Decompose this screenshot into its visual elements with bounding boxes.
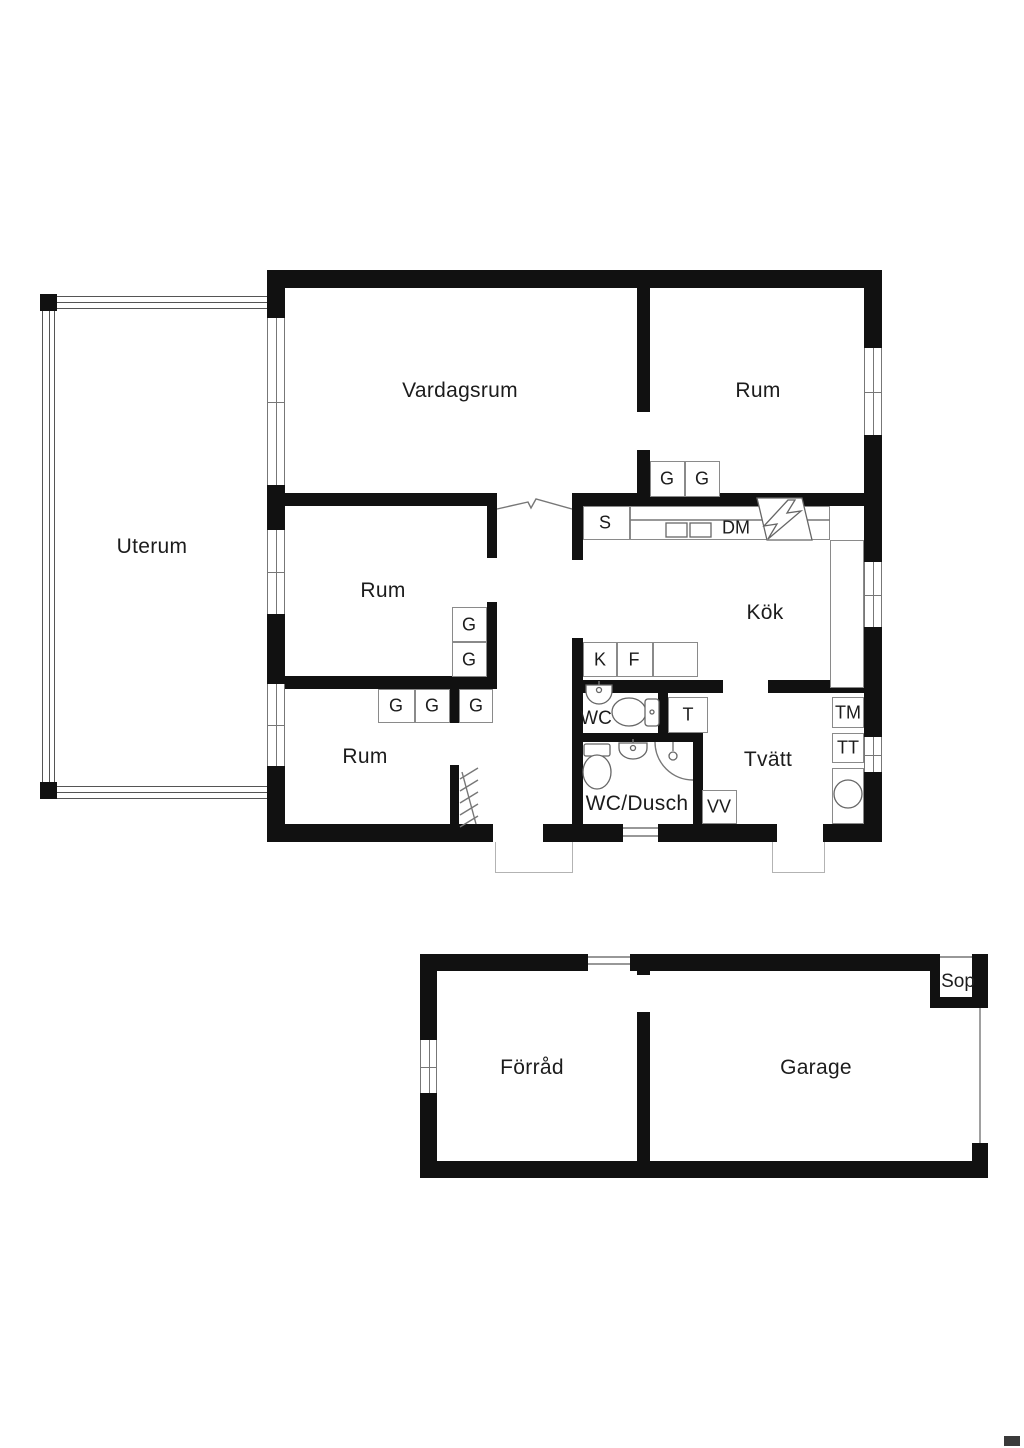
room-label-garage: Garage bbox=[780, 1056, 852, 1080]
room-label-uterum: Uterum bbox=[117, 535, 188, 559]
house-wall-right bbox=[864, 270, 882, 348]
wardrobe-label: G bbox=[660, 469, 674, 490]
wardrobe-label: G bbox=[425, 696, 439, 717]
wall-hall-right-upper bbox=[572, 506, 583, 560]
house-wall-bottom bbox=[267, 824, 493, 842]
room-label-rum-bottom: Rum bbox=[342, 745, 387, 769]
wardrobe-label: G bbox=[389, 696, 403, 717]
floor-plan: Uterum Vardagsrum Rum Rum Rum Kök Tvätt … bbox=[0, 0, 1024, 1448]
toilet bbox=[583, 744, 611, 789]
drying-cabinet-label: T bbox=[683, 705, 694, 726]
room-label-forrad: Förråd bbox=[500, 1056, 564, 1080]
wall-rum-middle-bottom bbox=[285, 676, 497, 689]
uterum-corner-post-top bbox=[40, 294, 57, 311]
window bbox=[864, 737, 882, 772]
wall-vardagsrum-bottom bbox=[285, 493, 497, 506]
double-door-symbol bbox=[497, 499, 572, 509]
house-wall-bottom bbox=[543, 824, 623, 842]
washing-machine-label: TM bbox=[835, 703, 861, 724]
wall-rum-bottom-door-stub bbox=[450, 765, 459, 824]
uterum-glass-wall-bottom bbox=[42, 786, 268, 799]
window bbox=[267, 530, 285, 614]
wardrobe-label: G bbox=[695, 469, 709, 490]
garage-wall-left bbox=[420, 954, 437, 1040]
forrad-door bbox=[588, 957, 630, 964]
water-heater-label: VV bbox=[707, 797, 731, 818]
house-wall-left bbox=[267, 485, 285, 530]
wall-forrad-garage bbox=[637, 954, 650, 975]
house-wall-left bbox=[267, 270, 285, 318]
dishwasher-label: DM bbox=[722, 518, 750, 539]
garage-wall-top bbox=[630, 954, 940, 971]
freezer-label: F bbox=[629, 650, 640, 671]
wardrobe-label: G bbox=[462, 615, 476, 636]
garage-wall-right bbox=[972, 1143, 988, 1178]
tumble-dryer-label: TT bbox=[837, 738, 859, 759]
wall-wc-top bbox=[575, 680, 723, 693]
house-wall-top bbox=[267, 270, 882, 288]
cabinet bbox=[653, 642, 698, 677]
room-label-rum-top: Rum bbox=[735, 379, 780, 403]
wall-wc-dusch-top bbox=[575, 733, 703, 742]
entrance-porch bbox=[495, 842, 573, 873]
room-label-rum-middle: Rum bbox=[360, 579, 405, 603]
fridge-label: K bbox=[594, 650, 606, 671]
window bbox=[420, 1040, 437, 1093]
wall-closet-divider bbox=[450, 689, 459, 723]
hatched-door-symbol bbox=[460, 768, 478, 827]
house-wall-bottom bbox=[823, 824, 882, 842]
room-label-sop: Sop bbox=[941, 971, 975, 993]
window bbox=[864, 562, 882, 627]
window bbox=[267, 684, 285, 766]
shower bbox=[655, 742, 693, 780]
garage-wall-top bbox=[420, 954, 588, 971]
logo-mark bbox=[1004, 1436, 1020, 1446]
entrance-porch bbox=[772, 842, 825, 873]
house-wall-right bbox=[864, 627, 882, 737]
bathroom-sink bbox=[619, 739, 647, 759]
wardrobe-label: G bbox=[462, 650, 476, 671]
garage-wall-bottom bbox=[420, 1161, 988, 1178]
sop-wall-bottom bbox=[930, 997, 988, 1008]
wc-toilet bbox=[612, 698, 659, 726]
room-label-wc-dusch: WC/Dusch bbox=[586, 792, 689, 816]
house-wall-right bbox=[864, 435, 882, 562]
window bbox=[267, 318, 285, 485]
room-label-tvatt: Tvätt bbox=[744, 748, 792, 772]
wall-wc-right bbox=[658, 693, 668, 733]
laundry-sink-cabinet bbox=[832, 768, 864, 824]
house-wall-left bbox=[267, 614, 285, 684]
wall-forrad-garage bbox=[637, 1012, 650, 1161]
room-label-vardagsrum: Vardagsrum bbox=[402, 379, 518, 403]
wall-hall-left-upper bbox=[487, 506, 497, 558]
uterum-glass-wall-left bbox=[42, 296, 55, 799]
wardrobe-label: G bbox=[469, 696, 483, 717]
house-wall-bottom bbox=[658, 824, 777, 842]
door-threshold bbox=[623, 828, 658, 836]
sink-label: S bbox=[599, 513, 611, 534]
wall-vardagsrum-rum bbox=[637, 288, 650, 412]
uterum-glass-wall-top bbox=[42, 296, 268, 309]
wall-hall-right-lower bbox=[572, 638, 583, 824]
uterum-corner-post-bottom bbox=[40, 782, 57, 799]
room-label-wc: WC bbox=[580, 708, 612, 730]
window bbox=[864, 348, 882, 435]
kitchen-counter-right bbox=[830, 540, 864, 688]
room-label-kok: Kök bbox=[746, 601, 783, 625]
